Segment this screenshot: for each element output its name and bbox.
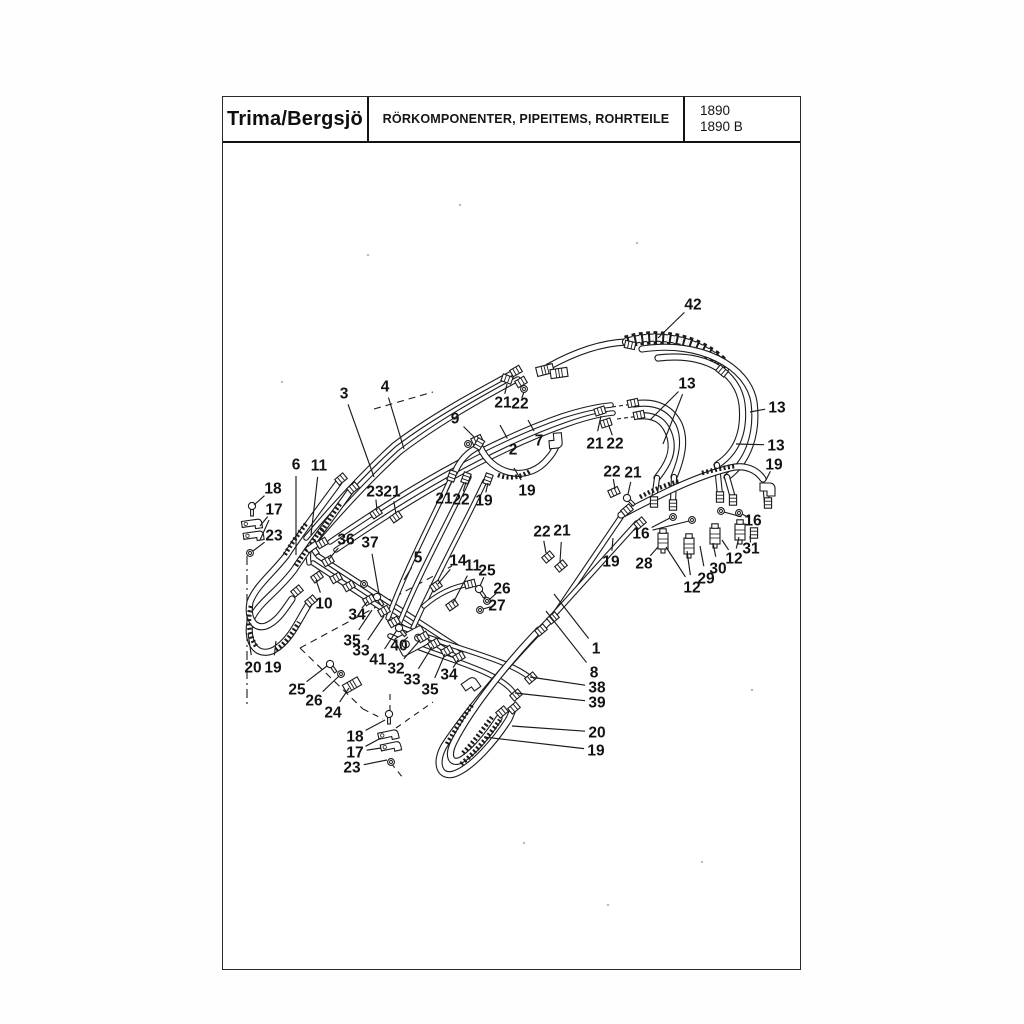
svg-text:19: 19 [264,660,282,677]
svg-text:21: 21 [624,465,642,482]
callout-10: 10 [315,580,332,613]
svg-text:23: 23 [265,528,283,545]
nut-fitting-glyph [555,560,568,572]
valve-fitting-glyph [658,529,668,553]
bracket-fitting-glyph [378,729,402,754]
svg-text:22: 22 [606,436,623,453]
elbow-fitting-glyph [548,433,562,449]
callout-42: 42 [658,297,702,338]
callout-1: 1 [554,594,601,658]
nut-fitting-glyph [729,495,736,505]
ring-fitting-glyph [247,550,254,557]
svg-text:22: 22 [452,492,469,509]
callout-22: 22 [603,464,620,489]
svg-text:20: 20 [244,660,261,677]
svg-text:26: 26 [305,693,323,710]
svg-text:12: 12 [683,580,700,597]
callout-40: 40 [390,637,408,655]
callout-28: 28 [635,547,658,573]
valve-fitting-glyph [710,524,720,548]
svg-text:7: 7 [535,433,544,450]
nut-fitting-glyph [446,599,459,611]
coupler-fitting-glyph [342,677,361,693]
svg-text:19: 19 [518,483,536,500]
svg-text:23: 23 [366,484,384,501]
svg-text:11: 11 [311,458,328,475]
bolt-fitting-glyph [385,710,392,724]
nut-fitting-glyph [650,497,657,507]
callout-22: 22 [606,426,623,453]
svg-text:24: 24 [324,705,342,722]
svg-text:34: 34 [440,667,458,684]
svg-text:1: 1 [592,641,601,658]
svg-text:35: 35 [421,682,439,699]
svg-text:18: 18 [264,481,282,498]
svg-text:16: 16 [632,526,650,543]
svg-text:4: 4 [381,379,390,396]
svg-text:21: 21 [435,491,453,508]
svg-text:28: 28 [635,556,653,573]
svg-text:33: 33 [403,672,421,689]
svg-text:40: 40 [390,638,407,655]
bolt-fitting-glyph [474,584,488,599]
callout-13: 13 [650,376,696,444]
callout-24: 24 [324,688,349,722]
svg-text:22: 22 [511,396,528,413]
svg-text:21: 21 [553,523,571,540]
callout-39: 39 [515,693,606,712]
ring-fitting-glyph [465,441,472,448]
svg-text:19: 19 [475,493,493,510]
svg-text:17: 17 [265,502,282,519]
ring-fitting-glyph [718,508,725,515]
svg-text:23: 23 [343,760,361,777]
ring-fitting-glyph [477,607,484,614]
nut-fitting-glyph [600,418,612,428]
nut-fitting-glyph [447,470,457,482]
ring-fitting-glyph [361,581,368,588]
svg-text:33: 33 [352,643,370,660]
callout-22: 22 [511,392,528,413]
svg-text:22: 22 [533,524,550,541]
callout-34: 34 [440,660,458,684]
callout-3: 3 [340,386,374,477]
svg-text:13: 13 [768,400,786,417]
callout-22: 22 [533,524,550,553]
coupler-fitting-glyph [550,367,568,378]
svg-text:22: 22 [603,464,620,481]
nut-fitting-glyph [764,498,771,508]
scan-speckles [281,204,753,906]
nut-fitting-glyph [464,579,476,589]
elbow-fitting-glyph [461,676,481,695]
nut-fitting-glyph [633,410,645,419]
ring-fitting-glyph [388,759,395,766]
svg-text:21: 21 [383,484,401,501]
callout-4: 4 [381,379,404,449]
svg-text:19: 19 [587,743,605,760]
callout-20: 20 [512,725,606,742]
svg-text:27: 27 [488,598,505,615]
ring-fitting-glyph [670,514,677,521]
svg-text:42: 42 [684,297,701,314]
callout-36: 36 [329,532,355,559]
svg-text:21: 21 [586,436,604,453]
svg-text:39: 39 [588,695,606,712]
elbow-fitting-glyph [760,483,775,496]
nut-fitting-glyph [627,398,639,407]
callout-13: 13 [736,438,785,455]
callout-9: 9 [451,411,474,437]
svg-text:19: 19 [765,457,783,474]
svg-text:21: 21 [494,395,512,412]
nut-fitting-glyph [542,551,555,563]
valve-fitting-glyph [684,534,694,558]
svg-text:13: 13 [678,376,696,393]
svg-text:19: 19 [602,554,620,571]
nut-fitting-glyph [624,340,636,349]
svg-text:13: 13 [767,438,785,455]
svg-text:25: 25 [478,563,496,580]
svg-text:20: 20 [588,725,605,742]
svg-text:36: 36 [337,532,355,549]
svg-text:12: 12 [725,551,742,568]
svg-text:5: 5 [414,550,423,567]
nut-fitting-glyph [291,585,304,597]
ring-fitting-glyph [521,386,528,393]
nut-fitting-glyph [716,492,723,502]
callout-19: 19 [765,457,783,480]
nut-fitting-glyph [608,487,620,498]
ring-fitting-glyph [689,517,696,524]
nut-fitting-glyph [669,500,676,510]
svg-text:26: 26 [493,581,511,598]
svg-text:16: 16 [744,513,762,530]
svg-text:37: 37 [361,535,378,552]
svg-text:41: 41 [369,652,387,669]
svg-text:32: 32 [387,661,404,678]
scanned-parts-catalog-page: { "header": { "brand": "Trima/Bergsjö", … [0,0,1024,1024]
svg-text:10: 10 [315,596,332,613]
svg-text:9: 9 [451,411,460,428]
svg-text:25: 25 [288,682,306,699]
callout-19: 19 [484,737,605,760]
svg-text:2: 2 [509,442,518,459]
callout-21: 21 [553,523,571,562]
svg-text:31: 31 [742,541,760,558]
parts-diagram: 4234131313192122927212219611181723232121… [0,0,1024,1024]
callout-12: 12 [666,547,701,597]
svg-text:18: 18 [346,729,364,746]
callout-23: 23 [343,760,387,777]
svg-text:6: 6 [292,457,301,474]
svg-text:34: 34 [348,607,366,624]
svg-text:3: 3 [340,386,349,403]
callout-21: 21 [624,465,642,494]
